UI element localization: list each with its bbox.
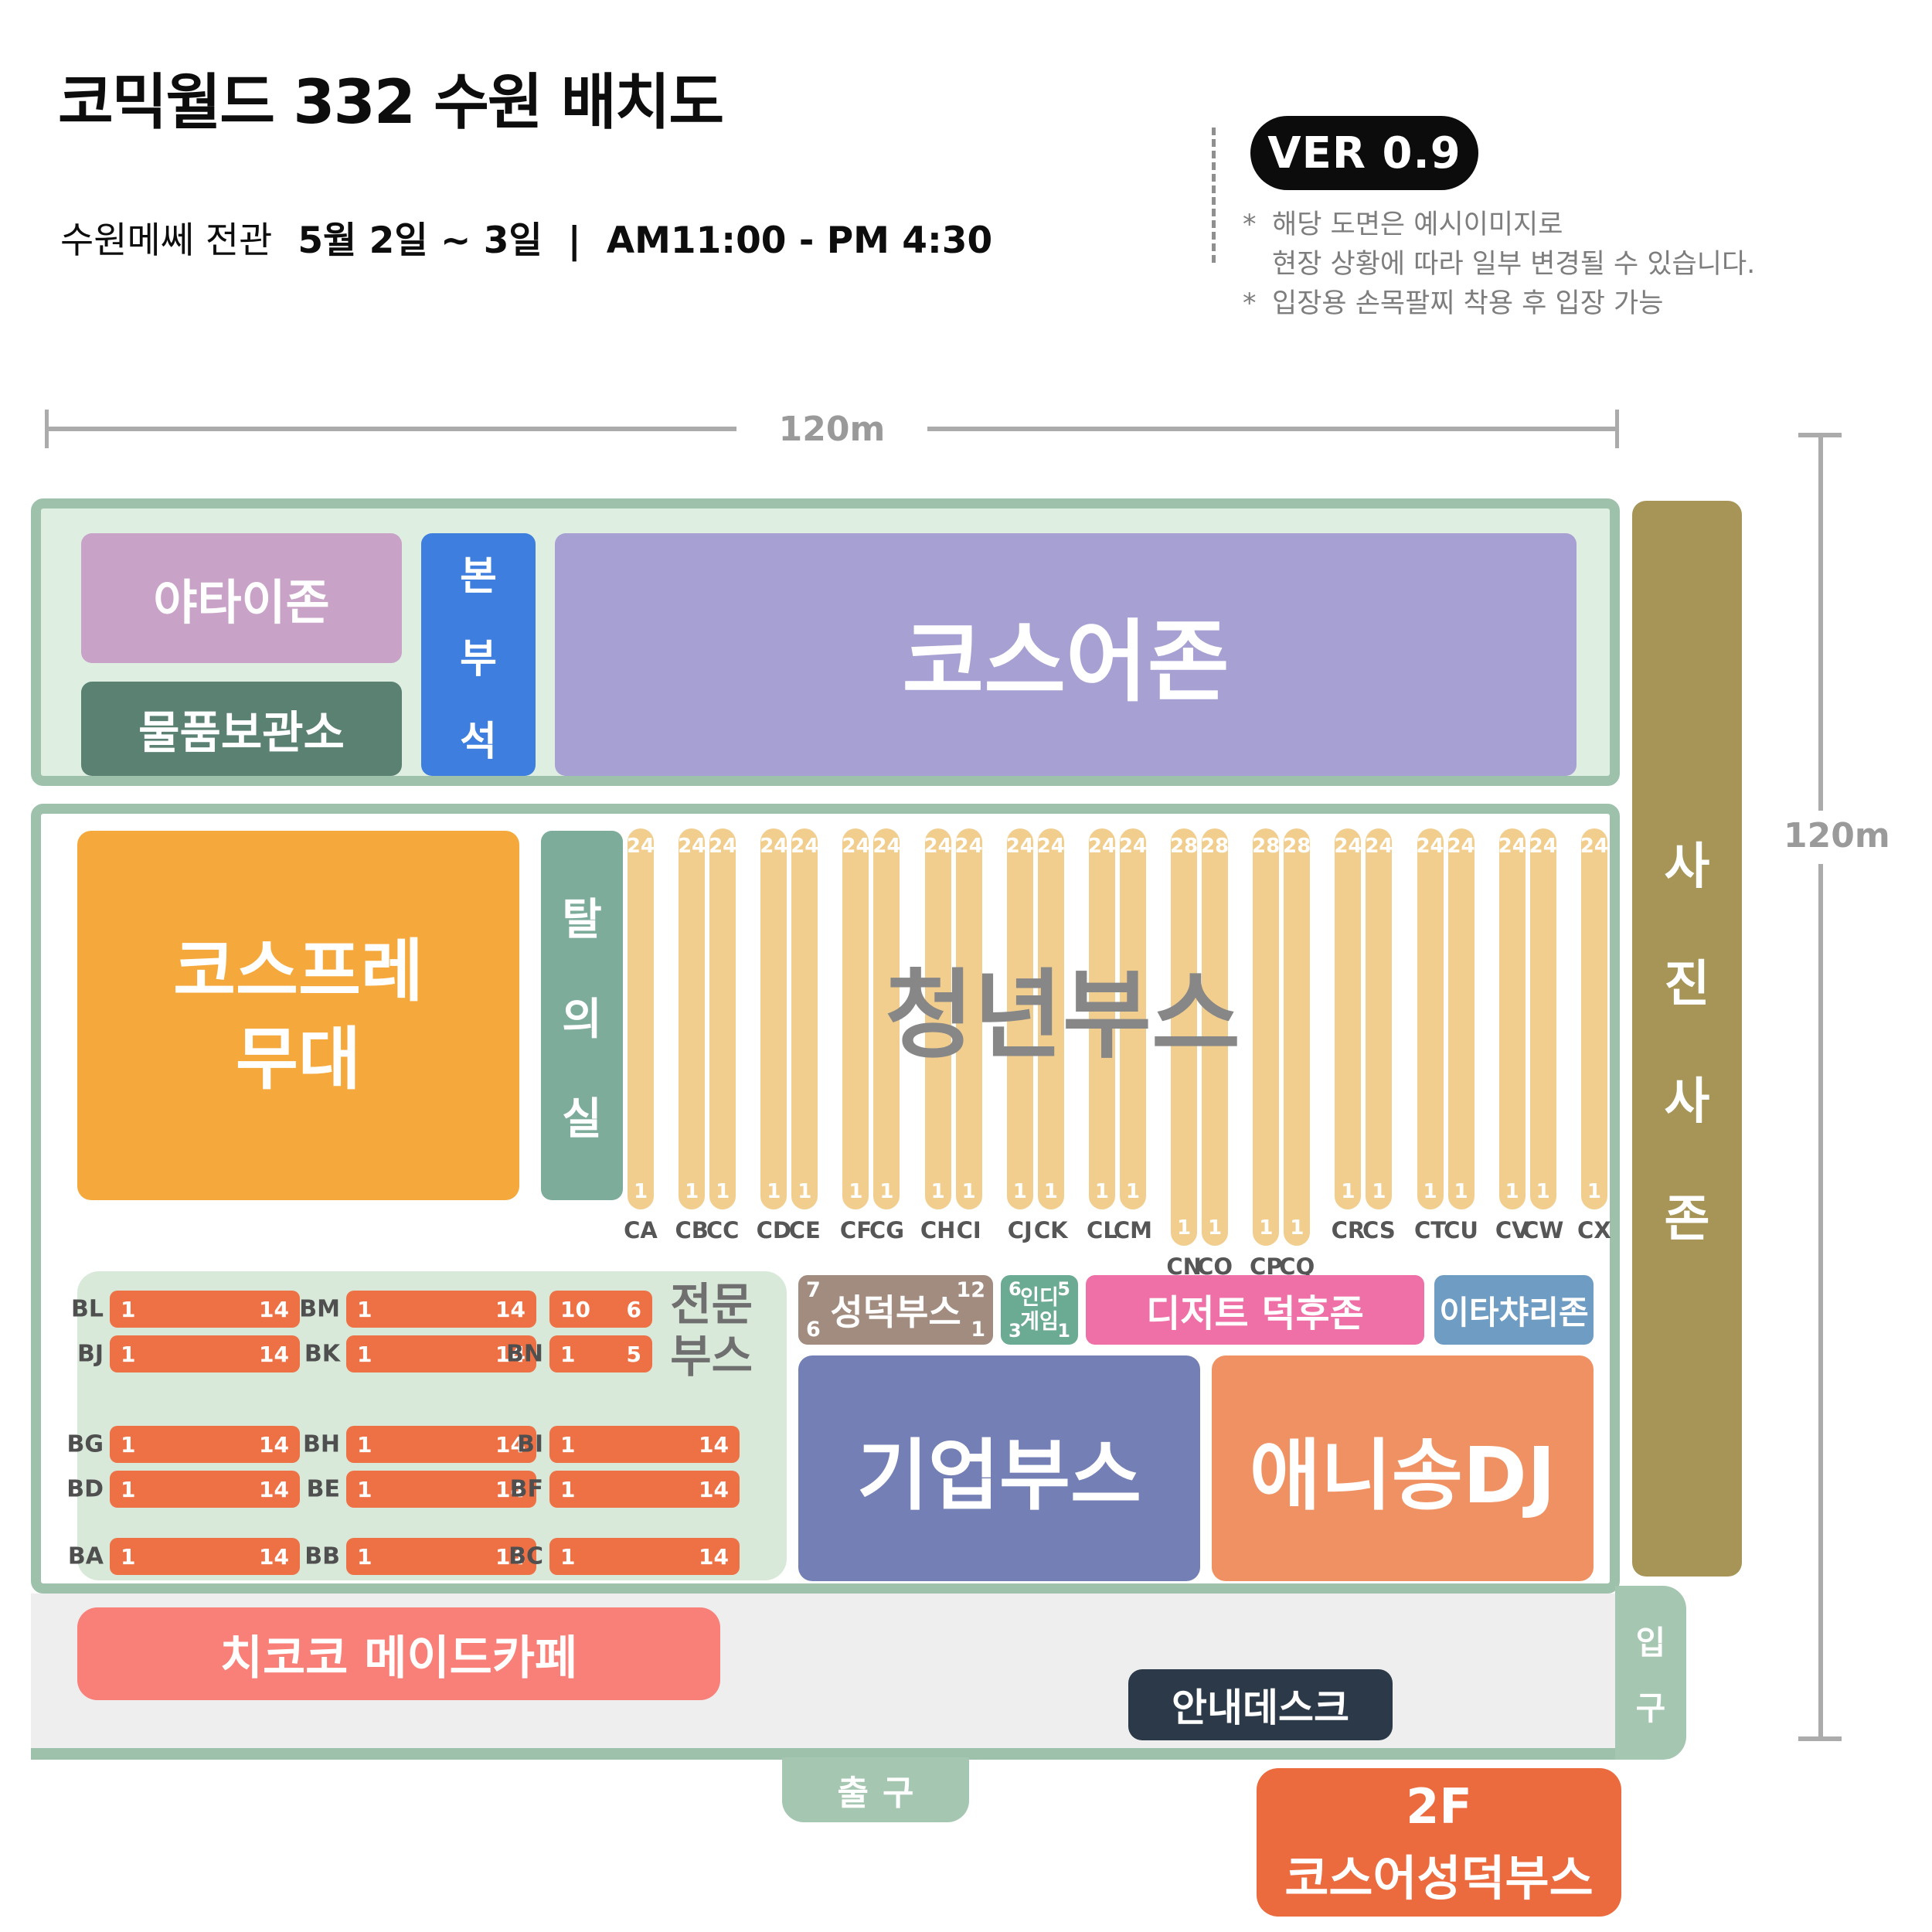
event-dates: 5월 2일 ~ 3일	[298, 219, 542, 262]
zone-anisong-dj: 애니송DJ	[1212, 1355, 1594, 1581]
zone-cosplayer: 코스어존	[555, 533, 1577, 776]
zone-cosplay-stage: 코스프레 무대	[77, 831, 519, 1200]
booth-column-CQ: 281CQ	[1284, 828, 1310, 1246]
booth-column-CB: 241CB	[679, 828, 705, 1209]
floor-plan-page: 코믹월드 332 수원 배치도 수원메쎄 전관 5월 2일 ~ 3일 | AM1…	[0, 0, 1932, 1932]
event-subtitle: 수원메쎄 전관 5월 2일 ~ 3일 | AM11:00 - PM 4:30	[60, 210, 992, 264]
zone-hq: 본부석	[421, 533, 536, 776]
pro-booth-row-BG: BG114	[110, 1426, 300, 1463]
page-title: 코믹월드 332 수원 배치도	[58, 54, 723, 141]
note-text: 해당 도면은 예시이미지로 현장 상황에 따라 일부 변경될 수 있습니다.	[1272, 206, 1755, 284]
pro-booth-row-BE: BE114	[346, 1471, 536, 1508]
pro-booth-row-BJ: BJ114	[110, 1335, 300, 1372]
zone-dressing-room: 탈의실	[541, 831, 623, 1200]
height-dimension-label: 120m	[1784, 816, 1890, 855]
zone-dessert: 디저트 덕후존	[1086, 1275, 1424, 1345]
note-item: * 해당 도면은 예시이미지로 현장 상황에 따라 일부 변경될 수 있습니다.	[1243, 206, 1861, 284]
booth-column-CS: 241CS	[1366, 828, 1392, 1209]
subtitle-separator: |	[568, 219, 581, 262]
zone-pro-booth: 전문 부스 BL114BM114106BJ114BK114BN15BG114BH…	[77, 1271, 787, 1580]
column-group: 241CR241CS	[1335, 828, 1392, 1209]
zone-info-desk: 안내데스크	[1128, 1669, 1393, 1740]
zone-exit: 출구	[782, 1757, 969, 1822]
pro-booth-title: 전문 부스	[670, 1279, 753, 1382]
zone-corporate-booth: 기업부스	[798, 1355, 1200, 1581]
column-group: 241CX	[1581, 828, 1607, 1209]
zone-youth-booth-label: 청년부스	[885, 937, 1240, 1077]
zone-maid-cafe: 치코코 메이드카페	[77, 1607, 720, 1700]
height-dimension-line: 120m	[1798, 433, 1844, 1741]
pro-booth-row-BD: BD114	[110, 1471, 300, 1508]
zone-itachari: 이타챠리존	[1434, 1275, 1594, 1345]
booth-column-CW: 241CW	[1530, 828, 1556, 1209]
zone-yatai: 야타이존	[81, 533, 402, 663]
header-divider	[1212, 128, 1216, 263]
pro-booth-row-bn-upper: 106	[549, 1291, 652, 1328]
zone-2f-booth: 2F 코스어성덕부스	[1257, 1768, 1621, 1917]
dimension-tick	[1798, 1736, 1842, 1741]
column-group: 241CD241CE	[760, 828, 818, 1209]
booth-column-CV: 241CV	[1499, 828, 1526, 1209]
column-group: 241CA	[628, 828, 654, 1209]
booth-column-CP: 281CP	[1253, 828, 1279, 1246]
pro-booth-row-BF: BF114	[549, 1471, 740, 1508]
booth-column-CE: 241CE	[791, 828, 818, 1209]
zone-seongdeok-booth: 7 12 6 1 성덕부스	[798, 1275, 993, 1345]
zone-indie-game: 6 5 3 1 인디 게임	[1001, 1275, 1078, 1345]
event-hours: AM11:00 - PM 4:30	[607, 219, 992, 262]
pro-booth-row-BL: BL114	[110, 1291, 300, 1328]
dimension-tick	[1615, 410, 1619, 448]
booth-column-CU: 241CU	[1448, 828, 1475, 1209]
version-badge: VER 0.9	[1250, 116, 1478, 190]
column-group: 241CV241CW	[1499, 828, 1556, 1209]
booth-column-CA: 241CA	[628, 828, 654, 1209]
pro-booth-row-BM: BM114	[346, 1291, 536, 1328]
booth-column-CR: 241CR	[1335, 828, 1361, 1209]
disclaimer-notes: * 해당 도면은 예시이미지로 현장 상황에 따라 일부 변경될 수 있습니다.…	[1243, 206, 1861, 323]
pro-booth-row-BH: BH114	[346, 1426, 536, 1463]
note-text: 입장용 손목팔찌 착용 후 입장 가능	[1272, 284, 1663, 324]
booth-column-CX: 241CX	[1581, 828, 1607, 1209]
pro-booth-row-BI: BI114	[549, 1426, 740, 1463]
booth-column-CC: 241CC	[709, 828, 736, 1209]
note-item: * 입장용 손목팔찌 착용 후 입장 가능	[1243, 284, 1861, 324]
pro-booth-row-BB: BB114	[346, 1538, 536, 1575]
venue-name: 수원메쎄 전관	[60, 219, 272, 262]
zone-storage: 물품보관소	[81, 682, 402, 776]
dimension-tick	[45, 410, 49, 448]
booth-column-CD: 241CD	[760, 828, 787, 1209]
booth-column-CT: 241CT	[1417, 828, 1444, 1209]
zone-photo: 사진사존	[1632, 501, 1742, 1577]
column-group: 241CT241CU	[1417, 828, 1475, 1209]
column-group: 241CB241CC	[679, 828, 736, 1209]
pro-booth-row-BN: BN15	[549, 1335, 652, 1372]
pro-booth-row-BC: BC114	[549, 1538, 740, 1575]
column-group: 281CP281CQ	[1253, 828, 1310, 1246]
width-dimension-label: 120m	[736, 410, 928, 449]
booth-column-CF: 241CF	[842, 828, 869, 1209]
width-dimension-line: 120m	[45, 410, 1619, 448]
zone-entrance: 입구	[1615, 1586, 1686, 1760]
pro-booth-row-BA: BA114	[110, 1538, 300, 1575]
